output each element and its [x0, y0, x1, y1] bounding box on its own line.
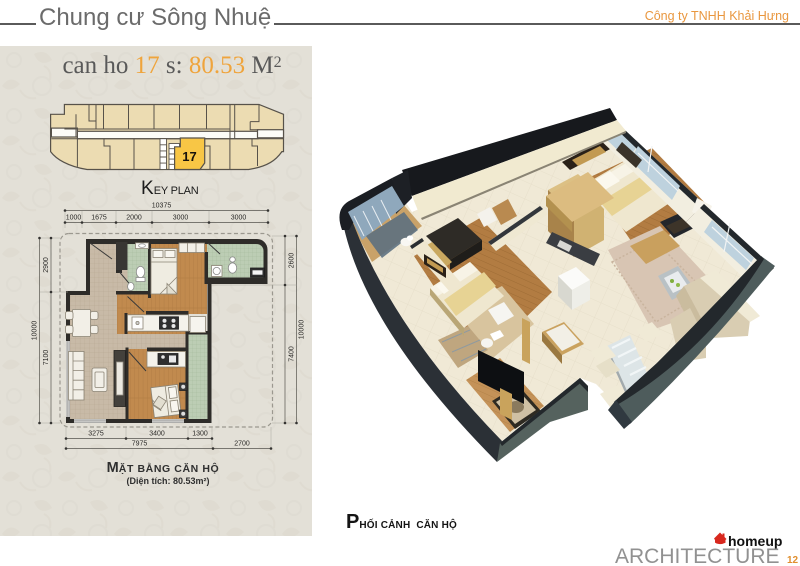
- svg-text:7975: 7975: [132, 441, 148, 448]
- svg-text:3000: 3000: [231, 215, 247, 222]
- svg-text:17: 17: [182, 149, 196, 164]
- svg-text:7400: 7400: [289, 346, 296, 362]
- svg-text:2000: 2000: [126, 215, 142, 222]
- svg-text:2700: 2700: [234, 441, 250, 448]
- svg-text:3400: 3400: [149, 431, 165, 438]
- svg-text:2900: 2900: [43, 257, 50, 273]
- svg-text:7100: 7100: [43, 350, 50, 366]
- svg-text:1675: 1675: [91, 215, 107, 222]
- svg-text:2600: 2600: [289, 253, 296, 269]
- svg-text:1000: 1000: [66, 215, 82, 222]
- svg-text:1300: 1300: [192, 431, 208, 438]
- svg-text:10000: 10000: [299, 320, 306, 340]
- svg-text:3275: 3275: [88, 431, 104, 438]
- svg-text:10000: 10000: [32, 321, 39, 341]
- svg-text:3000: 3000: [173, 215, 189, 222]
- svg-text:10375: 10375: [152, 203, 172, 210]
